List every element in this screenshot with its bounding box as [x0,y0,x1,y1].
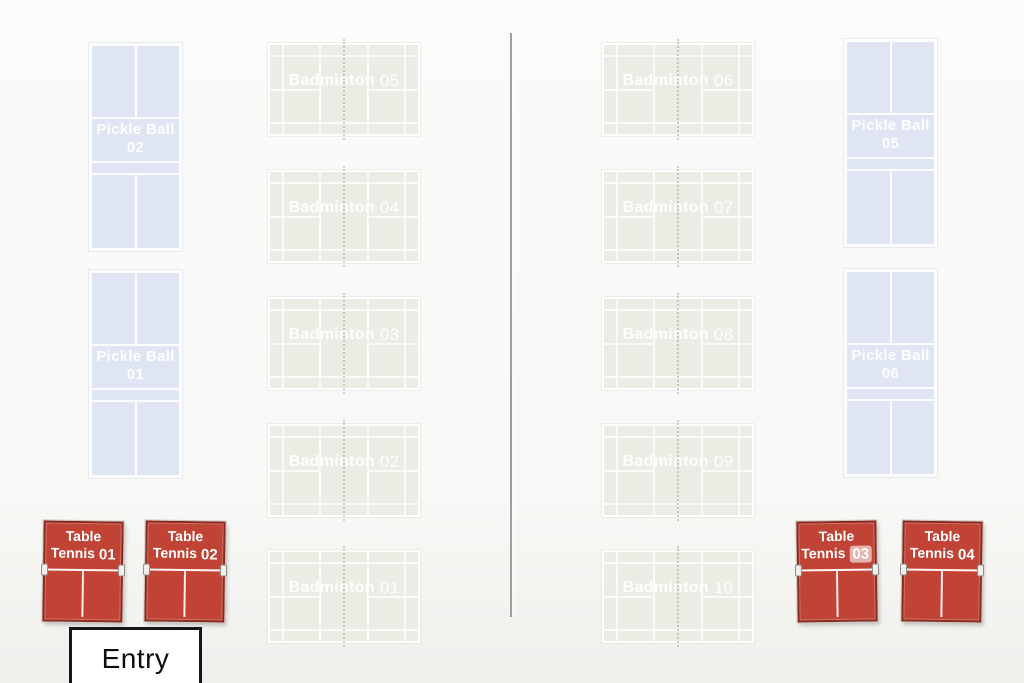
court-name: Pickle Ball [96,121,174,139]
table-number: 01 [99,546,116,563]
center-line [81,569,84,617]
badminton-court-01[interactable]: Badminton01 [268,550,420,643]
badminton-court-07[interactable]: Badminton07 [602,170,754,263]
center-divider-line [510,33,512,617]
court-label: Badminton09 [604,452,752,471]
table-label-line2: Tennis [801,545,845,562]
facility-floor-map: Badminton05Badminton04Badminton03Badmint… [0,0,1024,683]
table-number: 02 [201,546,218,563]
net-post-left [900,563,907,575]
court-line [92,388,179,390]
table-number: 04 [958,546,975,563]
court-line [92,161,179,163]
court-label: Badminton06 [604,71,752,90]
court-label: Pickle Ball02 [92,117,179,161]
court-number: 01 [380,578,400,597]
entry-label-box: Entry [69,627,202,683]
court-label: Badminton02 [270,452,418,471]
net-post-right [977,564,984,576]
table-label-line2: Tennis [910,545,954,562]
court-label: Badminton08 [604,325,752,344]
table-label-line1: Table [168,528,204,544]
court-number: 06 [714,71,734,90]
court-line [847,387,934,389]
table-label: TableTennis03 [798,527,874,562]
court-line [890,169,892,244]
court-number: 08 [714,325,734,344]
court-line [135,46,137,117]
court-label: Badminton10 [604,578,752,597]
net-post-left [41,563,48,575]
court-line [135,273,137,344]
net-post-right [220,564,227,576]
badminton-court-05[interactable]: Badminton05 [268,43,420,136]
court-number: 02 [127,139,144,157]
center-line [940,569,943,617]
court-name: Badminton [623,72,709,89]
court-label: Badminton07 [604,198,752,217]
center-line [836,569,839,617]
court-name: Badminton [623,453,709,470]
court-label: Badminton03 [270,325,418,344]
pickle-ball-court-05[interactable]: Pickle Ball05 [844,39,937,247]
table-label-line1: Table [925,528,961,544]
court-label: Pickle Ball06 [847,343,934,387]
court-name: Badminton [289,453,375,470]
court-label: Pickle Ball01 [92,344,179,388]
net-post-right [872,563,879,575]
badminton-court-06[interactable]: Badminton06 [602,43,754,136]
pickle-ball-court-06[interactable]: Pickle Ball06 [844,269,937,477]
court-line [890,42,892,113]
badminton-court-04[interactable]: Badminton04 [268,170,420,263]
court-label: Badminton04 [270,198,418,217]
badminton-court-02[interactable]: Badminton02 [268,424,420,517]
pickle-ball-court-02[interactable]: Pickle Ball02 [89,43,182,251]
court-name: Badminton [623,199,709,216]
court-number: 06 [882,365,899,383]
court-number: 03 [380,325,400,344]
badminton-court-03[interactable]: Badminton03 [268,297,420,390]
court-name: Pickle Ball [96,348,174,366]
badminton-court-10[interactable]: Badminton10 [602,550,754,643]
entry-label: Entry [102,643,170,675]
court-name: Pickle Ball [851,347,929,365]
table-label-line2: Tennis [153,545,197,562]
table-label-line1: Table [66,528,102,544]
badminton-court-09[interactable]: Badminton09 [602,424,754,517]
badminton-court-08[interactable]: Badminton08 [602,297,754,390]
table-label: TableTennis04 [904,527,980,562]
court-name: Badminton [289,72,375,89]
court-name: Badminton [289,199,375,216]
court-label: Badminton01 [270,578,418,597]
table-tennis-01[interactable]: TableTennis01 [42,520,123,622]
court-number: 02 [380,452,400,471]
pickle-ball-court-01[interactable]: Pickle Ball01 [89,270,182,478]
court-line [135,173,137,248]
court-line [847,157,934,159]
court-number: 07 [714,198,734,217]
court-name: Badminton [623,326,709,343]
center-line [183,569,186,617]
court-label: Badminton05 [270,71,418,90]
court-label: Pickle Ball05 [847,113,934,157]
court-number: 05 [380,71,400,90]
table-label: TableTennis02 [147,527,223,562]
table-label: TableTennis01 [45,527,121,562]
net-post-left [143,563,150,575]
table-tennis-02[interactable]: TableTennis02 [144,520,225,622]
court-name: Pickle Ball [851,117,929,135]
court-name: Badminton [289,579,375,596]
court-number: 01 [127,366,144,384]
court-name: Badminton [289,326,375,343]
court-name: Badminton [623,579,709,596]
table-label-line2: Tennis [51,545,95,562]
court-line [890,399,892,474]
court-line [890,272,892,343]
court-number: 10 [714,578,734,597]
table-tennis-03[interactable]: TableTennis03 [796,520,877,622]
table-label-line1: Table [819,528,855,544]
court-number: 09 [714,452,734,471]
court-line [135,400,137,475]
court-number: 05 [882,135,899,153]
table-tennis-04[interactable]: TableTennis04 [901,520,982,622]
court-number: 04 [380,198,400,217]
net-post-right [118,564,125,576]
table-number: 03 [849,545,872,562]
net-post-left [795,564,802,576]
